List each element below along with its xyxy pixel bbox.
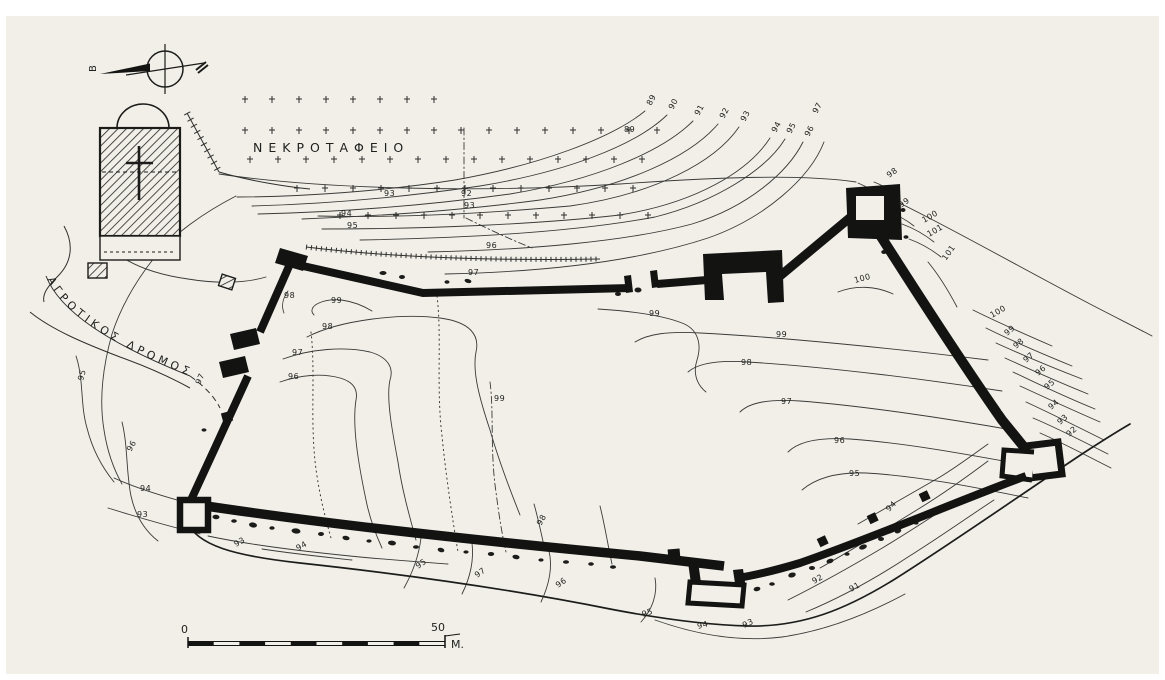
contour-elevation-label: 93 bbox=[464, 201, 475, 210]
scale-bar-segment bbox=[368, 642, 394, 645]
rubble-stone bbox=[809, 566, 815, 570]
north-label: Β bbox=[88, 65, 99, 72]
rubble-stone bbox=[904, 235, 909, 239]
contour-elevation-label: 99 bbox=[331, 296, 342, 305]
rubble-stone bbox=[366, 539, 371, 542]
contour-elevation-label: 99 bbox=[649, 309, 660, 318]
site-plan-scan: ΑΓΡΟΤΙΚΟΣ ΔΡΟΜΟΣ ΝΕΚΡΟΤΑΦΕΙΟ bbox=[0, 0, 1165, 680]
southwest-corner-tower bbox=[180, 500, 208, 530]
rubble-stone bbox=[610, 565, 616, 569]
contour-elevation-label: 93 bbox=[384, 189, 395, 198]
contour-elevation-label: 99 bbox=[494, 394, 505, 403]
cemetery-label: ΝΕΚΡΟΤΑΦΕΙΟ bbox=[253, 140, 409, 155]
contour-elevation-label: 96 bbox=[486, 241, 497, 250]
contour-elevation-label: 96 bbox=[834, 436, 845, 445]
paper-background bbox=[6, 16, 1159, 674]
contour-elevation-label: 98 bbox=[322, 322, 333, 331]
contour-elevation-label: 98 bbox=[741, 358, 752, 367]
rubble-stone bbox=[488, 552, 494, 556]
wall-tower-tooth bbox=[668, 548, 681, 560]
rubble-stone bbox=[615, 292, 621, 296]
rubble-stone bbox=[445, 280, 450, 284]
scale-fifty-label: 50 bbox=[431, 621, 445, 634]
scale-zero-label: 0 bbox=[181, 623, 188, 636]
contour-elevation-label: 98 bbox=[284, 291, 295, 300]
rubble-stone bbox=[380, 271, 387, 275]
rubble-stone bbox=[269, 526, 274, 530]
scale-unit-label: M. bbox=[451, 638, 464, 651]
rubble-stone bbox=[635, 288, 642, 293]
rubble-stone bbox=[538, 558, 543, 561]
scale-bar-segment bbox=[265, 642, 291, 645]
outbuilding bbox=[88, 263, 107, 278]
rubble-stone bbox=[399, 275, 405, 279]
fortification-wall-north bbox=[657, 280, 707, 284]
contour-elevation-label: 97 bbox=[468, 268, 479, 277]
contour-elevation-label: 92 bbox=[461, 189, 472, 198]
rubble-stone bbox=[318, 532, 324, 536]
rubble-stone bbox=[231, 519, 237, 523]
tower-courtyard bbox=[856, 196, 884, 220]
contour-elevation-label: 95 bbox=[347, 221, 358, 230]
contour-elevation-label: 89 bbox=[624, 125, 635, 134]
archaeological-site-plan: ΑΓΡΟΤΙΚΟΣ ΔΡΟΜΟΣ ΝΕΚΡΟΤΑΦΕΙΟ bbox=[0, 0, 1165, 680]
rubble-stone bbox=[413, 545, 419, 549]
contour-elevation-label: 97 bbox=[292, 348, 303, 357]
scale-bar-segment bbox=[317, 642, 343, 645]
rubble-stone bbox=[563, 560, 569, 564]
contour-elevation-label: 94 bbox=[140, 484, 151, 493]
rubble-stone bbox=[844, 552, 849, 556]
contour-elevation-label: 95 bbox=[849, 469, 860, 478]
south-gate-bastion bbox=[688, 582, 744, 606]
rubble-stone bbox=[202, 428, 207, 431]
contour-elevation-label: 93 bbox=[137, 510, 148, 519]
contour-elevation-label: 99 bbox=[776, 330, 787, 339]
scale-bar-segment bbox=[214, 642, 240, 645]
scale-bar-segment bbox=[419, 642, 445, 645]
rubble-stone bbox=[463, 550, 468, 553]
rubble-stone bbox=[769, 582, 775, 586]
rubble-stone bbox=[588, 562, 594, 566]
contour-elevation-label: 94 bbox=[341, 209, 352, 218]
contour-elevation-label: 97 bbox=[781, 397, 792, 406]
contour-elevation-label: 96 bbox=[288, 372, 299, 381]
church-annex bbox=[100, 236, 180, 260]
